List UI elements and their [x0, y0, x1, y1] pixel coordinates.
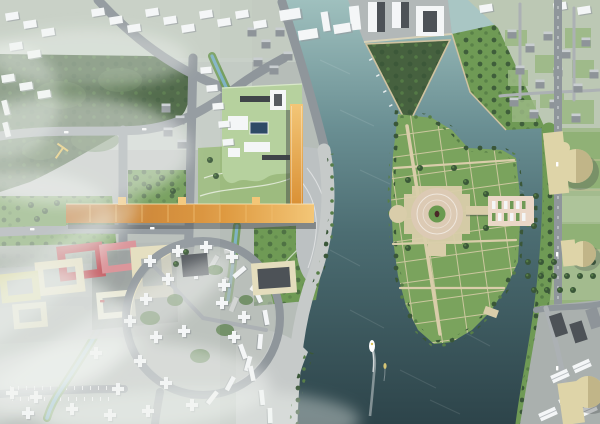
gray-tower — [508, 30, 517, 39]
plaza-south-arm — [428, 244, 446, 256]
small-boat — [383, 363, 386, 369]
north-riverfront-block — [348, 0, 452, 42]
west-overlook — [389, 205, 407, 223]
bridge-deck — [466, 206, 490, 215]
glass-atrium — [250, 122, 268, 134]
mist-veil — [0, 0, 220, 424]
roof-slot-1 — [240, 96, 270, 102]
dark-cream-building — [251, 261, 297, 296]
orange-ramp — [290, 104, 303, 208]
boat-cabin — [371, 343, 373, 345]
plaza-sculpture — [435, 211, 440, 217]
masterplan-rendering — [0, 0, 600, 424]
tree — [525, 259, 531, 265]
pergola-plaza — [488, 196, 534, 226]
boat-hull — [369, 340, 375, 352]
roof-block-3 — [244, 142, 270, 152]
roof-block-2 — [228, 116, 248, 130]
masterplan-canvas — [0, 0, 600, 424]
